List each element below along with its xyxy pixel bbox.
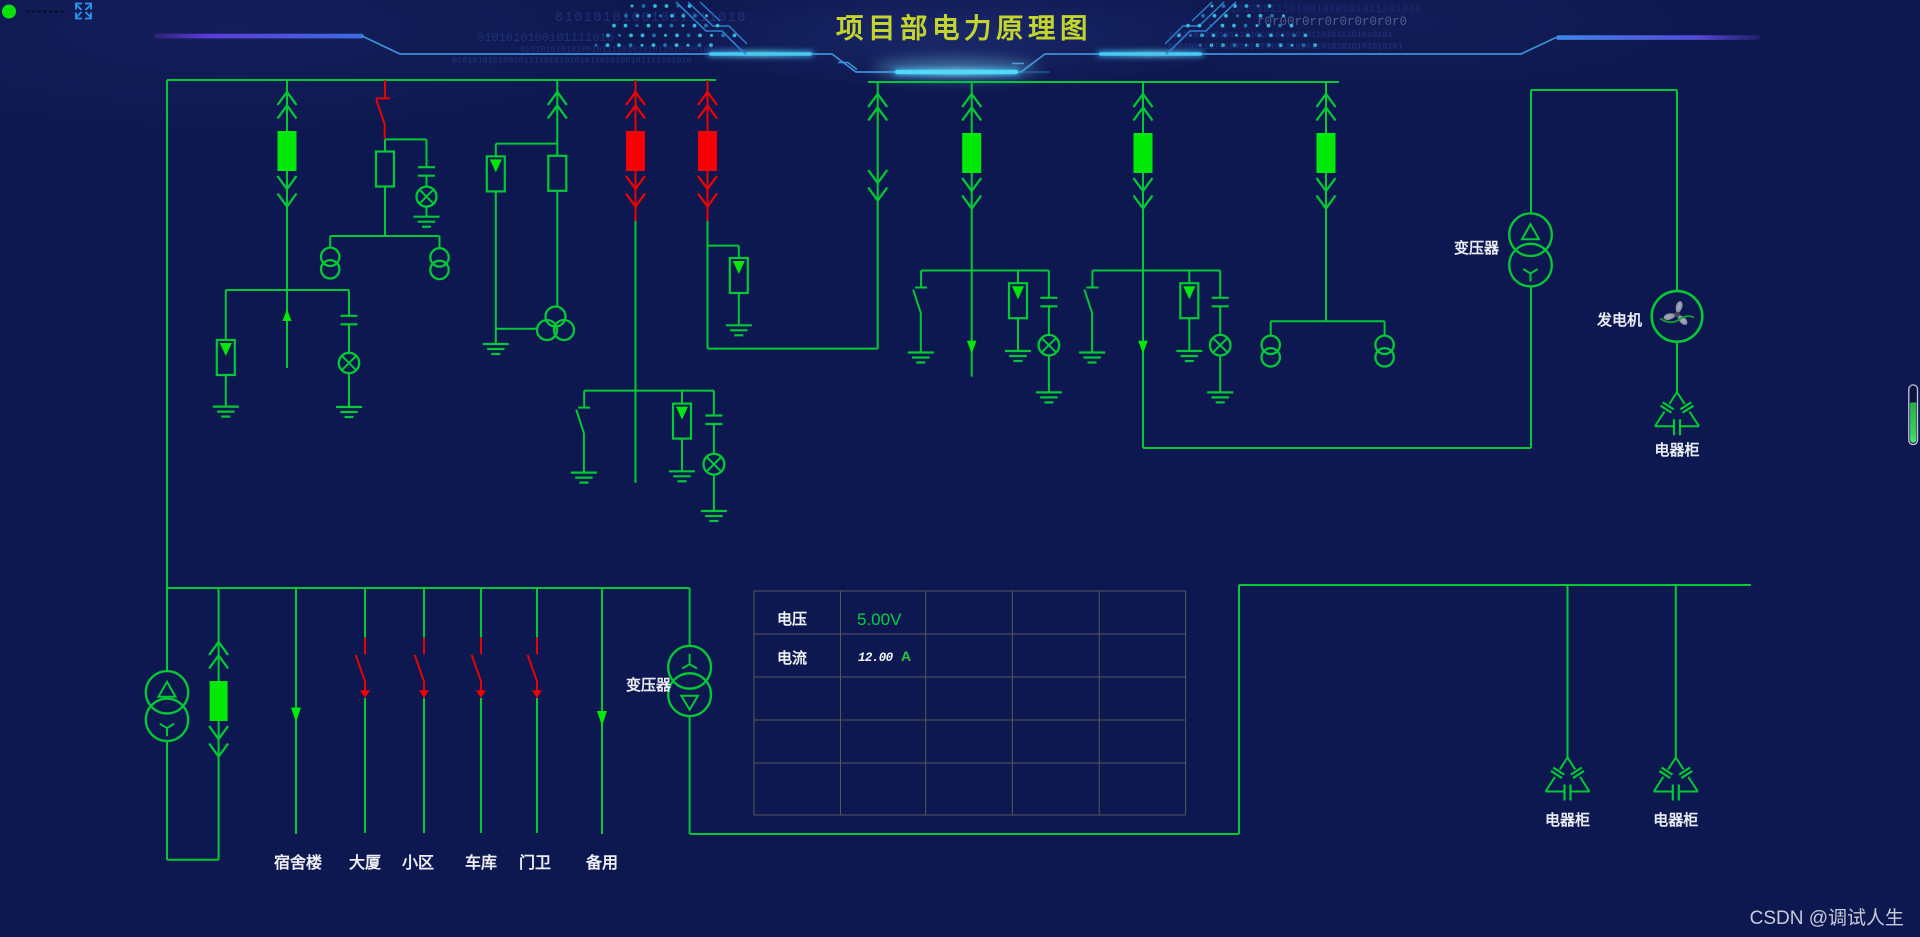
svg-text:0101010100101111010: 0101010100101111010	[477, 31, 614, 45]
svg-text:r0r00r0rr0r0r0r0r0r0: r0r00r0rr0r0r0r0r0r0	[1257, 15, 1407, 29]
svg-text:101010101010111010101010101011: 1010101010101110101010101010110101010101…	[1168, 30, 1392, 40]
svg-text:备用: 备用	[585, 853, 618, 872]
svg-text:010101111101001010101010101011: 0101011111010010101010101010110101010101…	[1168, 42, 1403, 52]
svg-text:01010101001011111010: 01010101001011111010	[555, 11, 747, 26]
svg-text:电压: 电压	[777, 610, 807, 628]
svg-text:小区: 小区	[402, 854, 434, 872]
svg-text:门卫: 门卫	[519, 853, 551, 872]
svg-text:发电机: 发电机	[1596, 311, 1642, 329]
svg-text:12.00: 12.00	[858, 651, 894, 665]
svg-text:大厦: 大厦	[349, 853, 382, 872]
svg-text:变压器: 变压器	[1454, 239, 1500, 257]
svg-text:010101010101001011110101010110: 0101010101010010111101010101101010010111…	[520, 45, 734, 55]
svg-text:010101010100101111010101010110: 0101010101001011110101010101101010010111…	[452, 56, 692, 66]
svg-text:5.00V: 5.00V	[857, 610, 902, 629]
svg-text:项目部电力原理图: 项目部电力原理图	[836, 13, 1092, 44]
svg-text:变压器: 变压器	[626, 676, 672, 694]
svg-text:宿舍楼: 宿舍楼	[274, 853, 322, 872]
svg-text:A: A	[901, 648, 911, 664]
svg-text:电器柜: 电器柜	[1545, 811, 1590, 829]
svg-text:电器柜: 电器柜	[1654, 441, 1699, 459]
svg-text:电器柜: 电器柜	[1653, 811, 1698, 829]
svg-text:电流: 电流	[777, 649, 807, 667]
svg-text:车库: 车库	[465, 853, 497, 872]
svg-text:CSDN @调试人生: CSDN @调试人生	[1750, 907, 1904, 929]
